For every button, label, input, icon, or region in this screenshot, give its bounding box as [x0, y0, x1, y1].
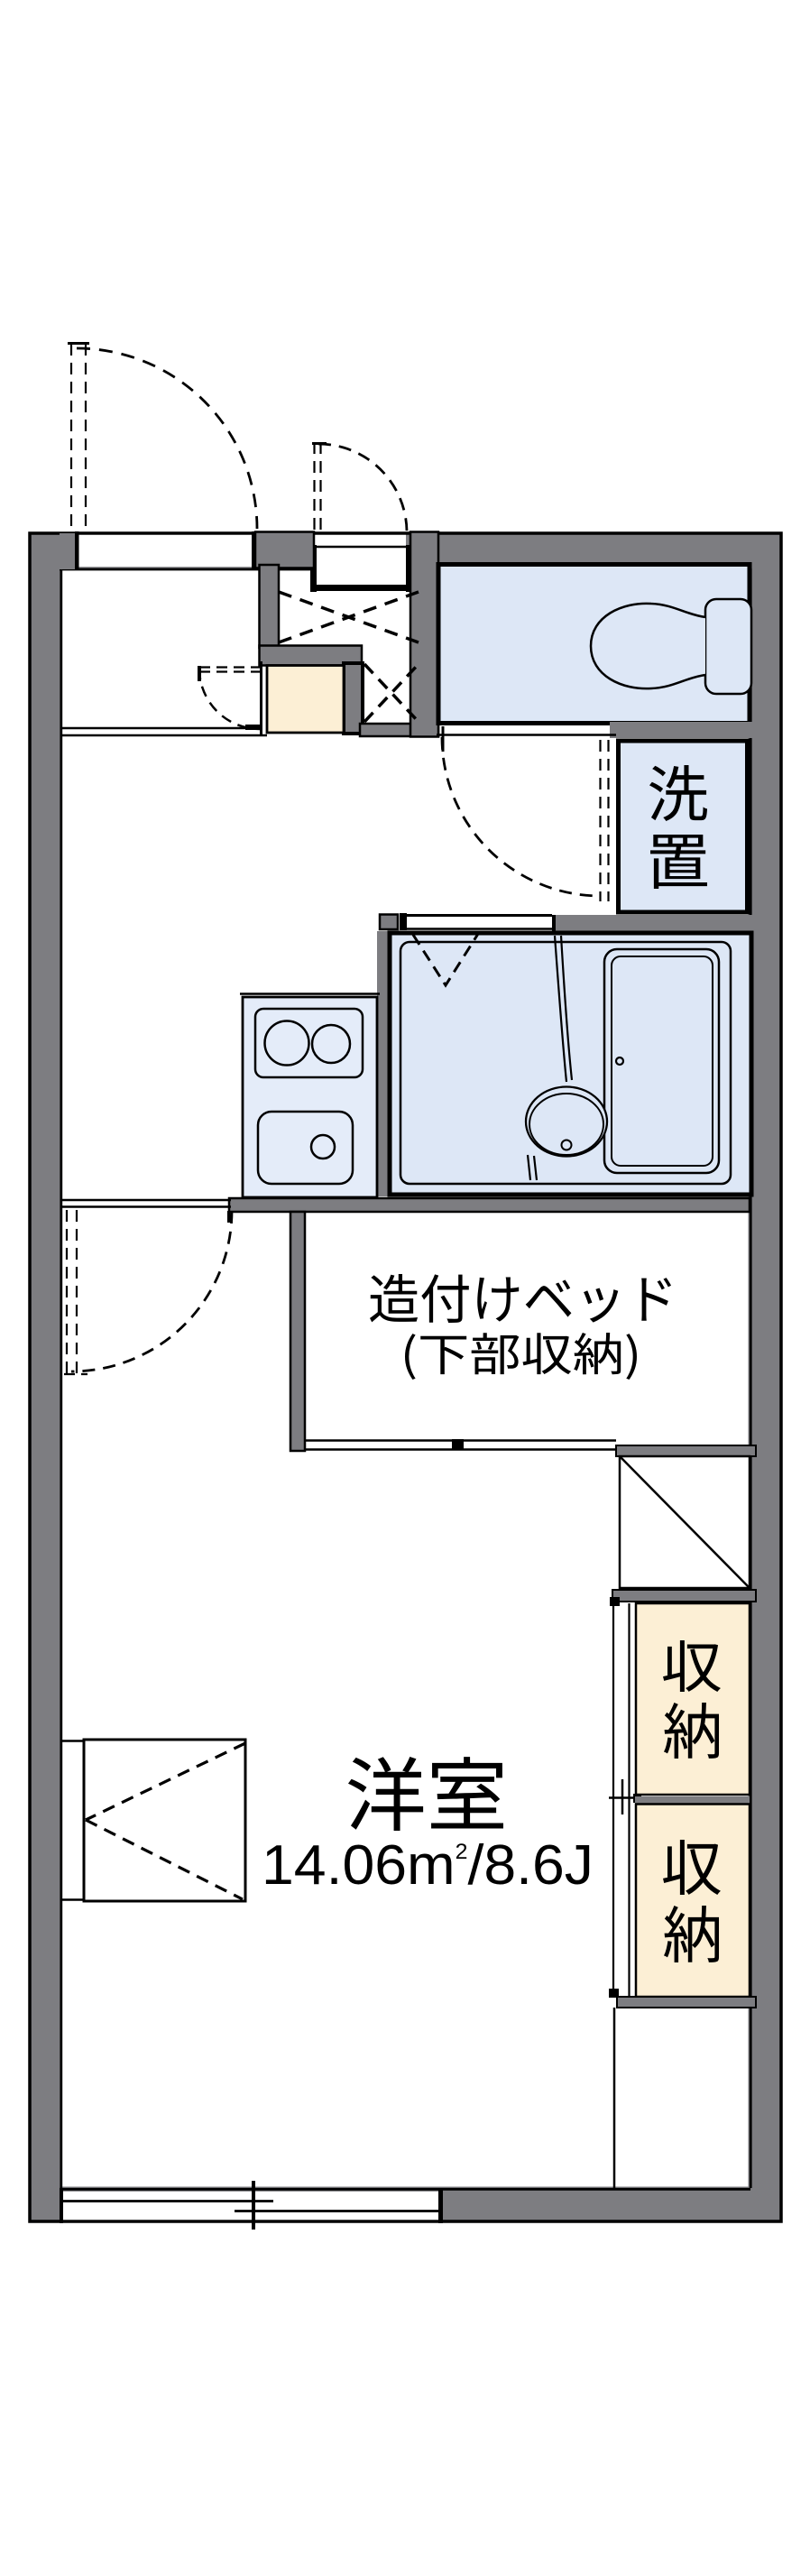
svg-text:14.06m2/8.6J: 14.06m2/8.6J [262, 1834, 594, 1897]
